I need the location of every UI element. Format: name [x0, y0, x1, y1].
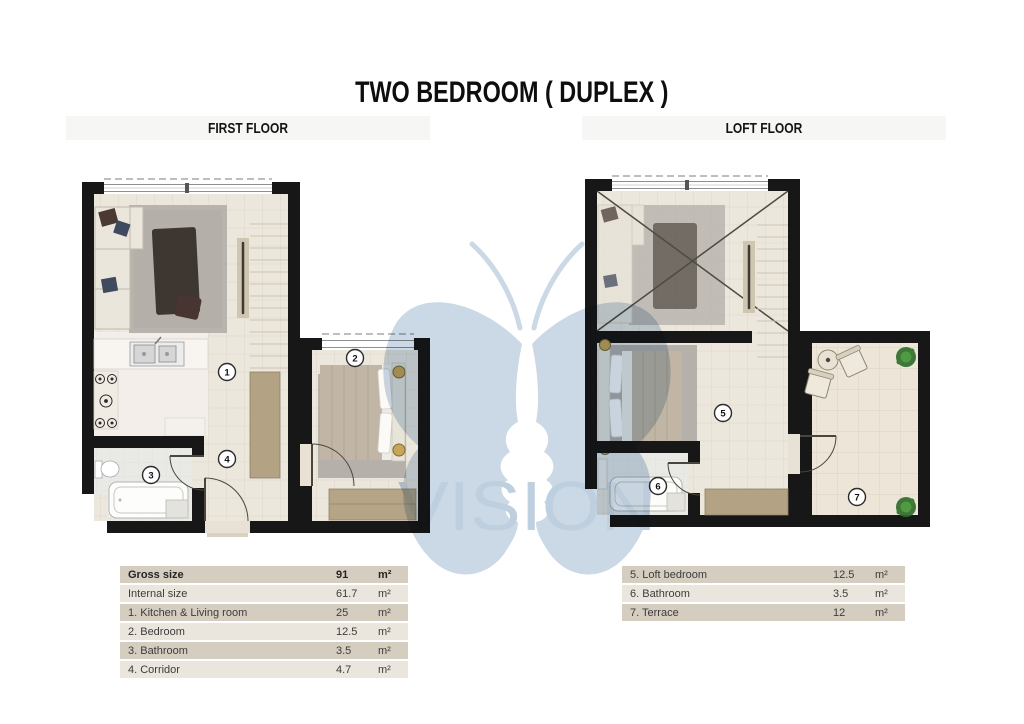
living-room-window — [104, 179, 272, 194]
bathroom-wall-seg1 — [192, 448, 204, 456]
kitchen-cabinet — [165, 418, 205, 436]
page-title: TWO BEDROOM ( DUPLEX ) — [0, 73, 1024, 110]
svg-text:7: 7 — [854, 493, 859, 504]
table-row: 4. Corridor 4.7 m² — [120, 661, 408, 678]
kitchen-counter — [94, 337, 208, 369]
table-row: 3. Bathroom 3.5 m² — [120, 642, 408, 659]
table-row: 7. Terrace 12 m² — [622, 604, 905, 621]
first-floor-area-table: Gross size 91 m² Internal size 61.7 m² 1… — [120, 566, 408, 680]
room-badge: 1 — [219, 364, 236, 381]
svg-text:2: 2 — [352, 354, 357, 365]
stair-closet — [250, 372, 280, 478]
table-row: Gross size 91 m² — [120, 566, 408, 583]
svg-text:1: 1 — [224, 368, 230, 379]
corridor-closet — [705, 489, 788, 515]
table-row: 6. Bathroom 3.5 m² — [622, 585, 905, 602]
watermark-brand-text: VISION — [398, 467, 656, 545]
stove — [94, 371, 118, 429]
room-badge: 5 — [715, 405, 732, 422]
loft-floor-area-table: 5. Loft bedroom 12.5 m² 6. Bathroom 3.5 … — [622, 566, 905, 623]
table-row: 1. Kitchen & Living room 25 m² — [120, 604, 408, 621]
sofa-pillow-navy2 — [101, 277, 118, 293]
svg-text:4: 4 — [224, 455, 230, 466]
first-floor-header: FIRST FLOOR — [66, 116, 430, 140]
loft-bathroom-wall-seg2 — [688, 493, 700, 515]
loft-window — [612, 176, 768, 191]
first-floor-header-label: FIRST FLOOR — [208, 120, 288, 137]
toilet — [95, 461, 119, 478]
loft-floor-header-label: LOFT FLOOR — [726, 120, 803, 137]
room-badge: 3 — [143, 467, 160, 484]
table-row: 5. Loft bedroom 12.5 m² — [622, 566, 905, 583]
room-badge: 7 — [849, 489, 866, 506]
loft-floor-header: LOFT FLOOR — [582, 116, 946, 140]
bathroom-top-wall — [94, 436, 204, 448]
terrace-plant — [896, 497, 916, 517]
table-row: Internal size 61.7 m² — [120, 585, 408, 602]
svg-text:5: 5 — [720, 409, 726, 420]
svg-text:3: 3 — [148, 471, 153, 482]
loft-bathroom-wall-seg1 — [688, 453, 700, 463]
room-badge: 2 — [347, 350, 364, 367]
terrace-plant — [896, 347, 916, 367]
room-badge: 4 — [219, 451, 236, 468]
table-row: 2. Bedroom 12.5 m² — [120, 623, 408, 640]
bathroom-wall-seg2 — [192, 488, 204, 521]
washing-machine — [166, 500, 188, 518]
floorplan-sheet: TWO BEDROOM ( DUPLEX ) FIRST FLOOR LOFT … — [0, 0, 1024, 724]
